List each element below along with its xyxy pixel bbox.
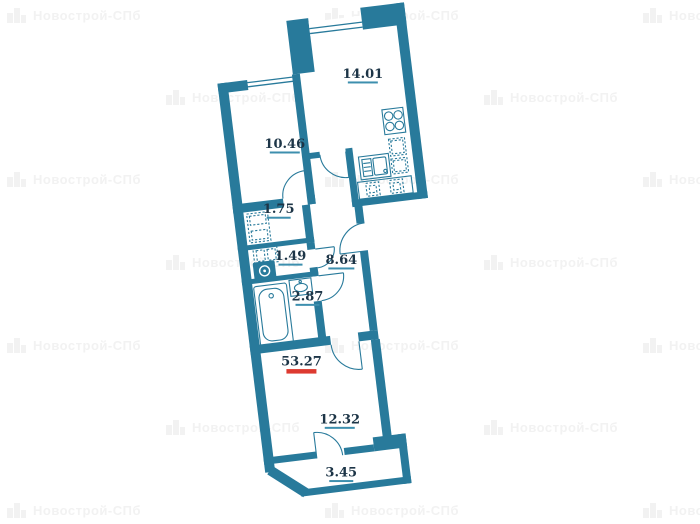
wall	[302, 204, 315, 243]
door-arc-entry	[337, 223, 368, 254]
wall	[371, 339, 393, 443]
room-label-storage: 1.75	[263, 202, 295, 219]
area-underline	[329, 480, 353, 482]
area-underline	[278, 264, 302, 266]
area-value: 53.27	[281, 355, 322, 370]
area-value: 1.75	[263, 202, 295, 217]
door-arc-living-room	[280, 171, 308, 199]
total-area-underline	[286, 369, 316, 374]
wall	[308, 195, 316, 205]
stove-icon	[382, 107, 406, 134]
area-value: 14.01	[342, 67, 383, 82]
area-underline	[270, 151, 300, 153]
area-value: 2.87	[292, 289, 324, 304]
wall	[314, 301, 327, 342]
wall	[307, 242, 316, 250]
floorplan-svg: 14.0110.461.751.498.642.8753.2712.323.45	[0, 0, 700, 524]
room-label-bathroom: 2.87	[292, 289, 324, 306]
room-label-total: 53.27	[281, 355, 322, 374]
wall	[270, 466, 306, 497]
room-label-kitchen: 14.01	[342, 67, 383, 84]
area-value: 1.49	[275, 249, 307, 264]
area-underline	[325, 427, 355, 429]
area-underline	[296, 304, 320, 306]
room-label-hallway: 8.64	[326, 253, 358, 270]
kitchen-sink-icon	[358, 153, 391, 179]
room-label-room: 12.32	[319, 412, 360, 429]
floorplan-canvas: Новострой-СПбНовострой-СПбНовострой-СПбН…	[0, 0, 700, 524]
door-arc-balcony	[314, 429, 343, 458]
area-value: 12.32	[319, 412, 360, 427]
wall	[394, 2, 428, 199]
area-value: 3.45	[325, 466, 357, 481]
area-value: 10.46	[264, 137, 305, 152]
room-label-balcony: 3.45	[325, 466, 357, 483]
fixtures-layer	[234, 107, 430, 346]
area-value: 8.64	[326, 253, 358, 268]
door-arc-room	[331, 341, 362, 372]
wall	[217, 80, 248, 94]
washing-machine-icon	[253, 260, 277, 282]
room-label-wc: 1.49	[275, 249, 307, 266]
appliance-icon	[389, 137, 409, 174]
wall	[344, 444, 375, 455]
room-label-living-room: 10.46	[264, 137, 305, 154]
wall	[360, 251, 378, 331]
area-underline	[267, 217, 291, 219]
area-underline	[328, 267, 354, 269]
bathtub-icon	[253, 283, 293, 347]
door-arc-kitchen	[320, 152, 349, 181]
area-underline	[348, 81, 378, 83]
wall	[250, 336, 331, 355]
